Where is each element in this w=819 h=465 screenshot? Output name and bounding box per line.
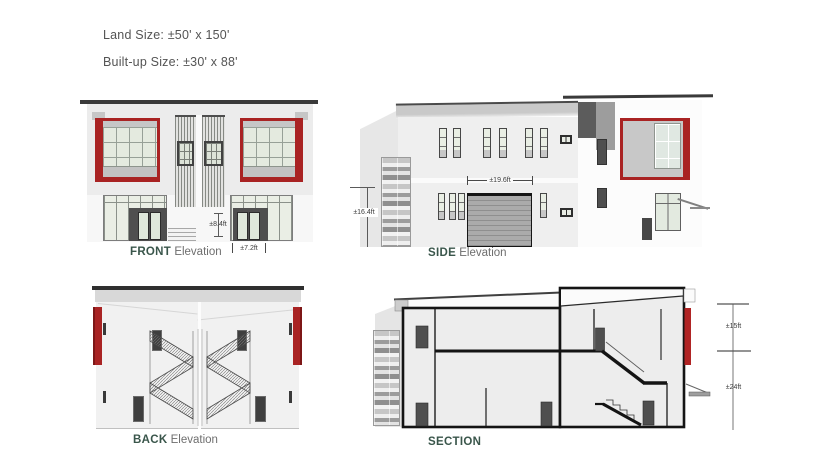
dim-tick — [214, 213, 223, 214]
side-lower-window — [458, 193, 465, 220]
back-red-strip-left — [93, 307, 102, 365]
side-upper-window — [540, 128, 548, 158]
section-caption: SECTION — [428, 436, 481, 448]
side-front-roof-edge — [563, 94, 713, 99]
section-stone-pier — [373, 330, 400, 426]
side-corner-slot-window — [597, 188, 607, 208]
section-drawing: ±15ft ±24ft SECTION — [370, 280, 770, 455]
side-upper-window — [499, 128, 507, 158]
built-up-size-text: Built-up Size: ±30' x 88' — [103, 55, 238, 69]
side-upper-square-window — [560, 135, 572, 144]
front-door-width-dim: ±7.2ft — [232, 243, 266, 253]
side-corner-window-glass — [654, 123, 681, 169]
side-lower-square-window — [560, 208, 573, 217]
side-upper-window — [439, 128, 447, 158]
front-entry-height-dim-label: ±8.4ft — [203, 220, 233, 229]
back-elevation-drawing: BACK Elevation — [90, 283, 335, 448]
back-exterior-stairs — [148, 329, 252, 429]
back-wall-slit — [289, 391, 292, 403]
section-lower-dim-label: ±24ft — [721, 383, 746, 392]
side-corner-red-window-box — [620, 118, 690, 180]
side-corner-slot-window — [597, 139, 607, 165]
front-entry-surround-left — [129, 208, 167, 241]
front-door-leaf — [138, 212, 149, 240]
side-caption: SIDE Elevation — [428, 247, 507, 259]
front-window-right-red-frame — [240, 118, 303, 182]
section-linework — [370, 280, 770, 455]
side-stone-pier — [381, 157, 411, 247]
front-elevation-drawing: ±8.4ft ±7.2ft FRONT Elevation — [80, 95, 320, 265]
front-caption-type: Elevation — [174, 246, 221, 258]
side-lower-window — [449, 193, 456, 220]
side-upper-window — [453, 128, 461, 158]
side-upper-window — [525, 128, 533, 158]
side-lower-window — [540, 193, 547, 218]
front-louver-screen-right — [202, 115, 225, 207]
side-caption-type: Elevation — [459, 247, 506, 259]
architectural-drawing-sheet: Land Size: ±50' x 150' Built-up Size: ±3… — [0, 0, 819, 465]
side-upper-window — [483, 128, 491, 158]
front-storefront-left — [103, 195, 167, 241]
land-size-text: Land Size: ±50' x 150' — [103, 28, 230, 42]
back-caption-name: BACK — [133, 434, 167, 446]
front-caption: FRONT Elevation — [130, 246, 222, 258]
front-louver-screen-left — [175, 115, 196, 207]
front-door-leaf — [150, 212, 161, 240]
front-window-left-spandrel — [103, 166, 157, 177]
back-wall-slit — [103, 391, 106, 403]
section-upper-dim-label: ±15ft — [721, 322, 746, 331]
back-wall-slit — [289, 323, 292, 335]
back-wall-slit — [103, 323, 106, 335]
back-caption-type: Elevation — [171, 434, 218, 446]
front-window-left-glass — [103, 127, 157, 166]
back-parapet-band — [95, 290, 301, 302]
front-window-right-spandrel — [243, 166, 295, 177]
front-entry-steps — [168, 228, 196, 241]
side-height-dim-line — [367, 187, 368, 247]
front-storefront-right — [230, 195, 293, 241]
side-caption-name: SIDE — [428, 247, 456, 259]
side-garage-door — [467, 193, 532, 247]
front-window-right-glass — [243, 127, 295, 166]
front-door-width-dim-label: ±7.2ft — [240, 244, 257, 253]
dim-tick — [350, 187, 375, 188]
side-elevation-drawing: ±19.6ft ±16.4ft SIDE Elevation — [350, 90, 720, 265]
dim-tick — [214, 236, 223, 237]
section-caption-name: SECTION — [428, 436, 481, 448]
side-garage-width-dim: ±19.6ft — [467, 176, 533, 185]
side-lower-window — [438, 193, 445, 220]
side-garage-width-dim-label: ±19.6ft — [487, 176, 512, 185]
front-door-leaf — [237, 212, 248, 240]
back-lower-door-left — [133, 396, 144, 422]
back-lower-door-right — [255, 396, 266, 422]
front-entry-surround-right — [233, 208, 268, 241]
side-corner-small-door — [642, 218, 652, 240]
front-louver-window-left — [177, 141, 194, 166]
side-height-dim-label: ±16.4ft — [350, 208, 378, 217]
front-window-left-red-frame — [95, 118, 160, 182]
front-louver-window-right — [204, 141, 223, 166]
back-caption: BACK Elevation — [133, 434, 218, 446]
front-caption-name: FRONT — [130, 246, 171, 258]
side-awning-bar — [690, 207, 710, 209]
front-door-leaf — [249, 212, 260, 240]
back-red-strip-right — [293, 307, 302, 365]
back-roof-line — [92, 286, 304, 290]
side-corner-dark-panel — [578, 102, 596, 138]
